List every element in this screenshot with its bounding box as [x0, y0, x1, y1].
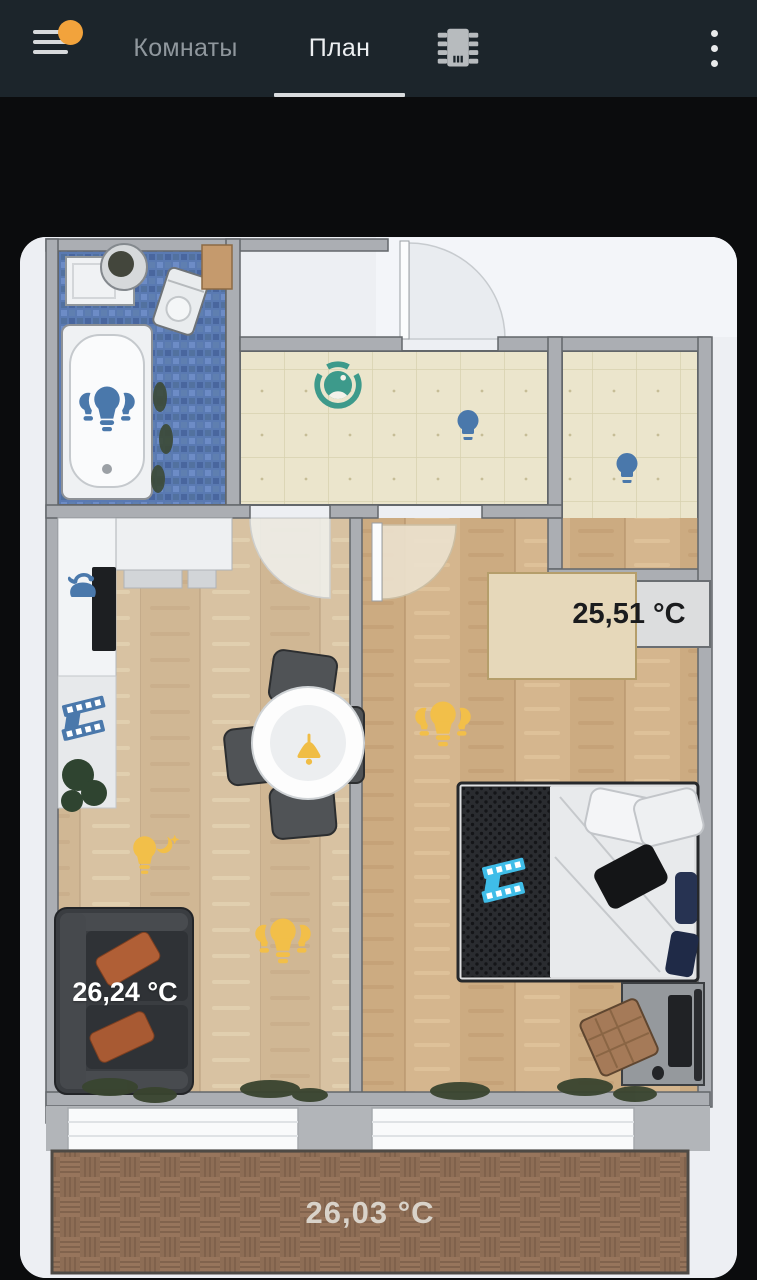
tab-rooms-label: Комнаты	[133, 34, 237, 63]
bedroom-light-group-button[interactable]	[412, 698, 474, 748]
light-group-icon	[76, 383, 138, 433]
lightbulb-icon	[450, 404, 486, 446]
dining-pendant-button[interactable]	[286, 730, 332, 774]
floor-plan-canvas[interactable]: 25,51 °C 26,24 °C 26,03 °C	[20, 237, 737, 1278]
robot-vacuum-icon	[311, 358, 365, 412]
tab-plan[interactable]: План	[274, 0, 405, 97]
blinds-icon	[56, 695, 114, 741]
bathroom-light-group-button[interactable]	[76, 383, 138, 433]
tab-rooms[interactable]: Комнаты	[108, 0, 263, 97]
closet-temperature[interactable]: 25,51 °C	[548, 581, 710, 647]
active-tab-underline	[274, 93, 405, 97]
balcony-temperature[interactable]: 26,03 °C	[52, 1195, 688, 1231]
vacuum-button[interactable]	[311, 358, 365, 412]
lightbulb-icon	[609, 447, 645, 489]
night-light-icon	[128, 832, 182, 878]
kebab-menu-icon	[711, 30, 718, 37]
kettle-button[interactable]	[60, 562, 106, 604]
light-group-icon	[252, 915, 314, 965]
devices-chip-button[interactable]	[430, 22, 486, 76]
living-light-group-button[interactable]	[252, 915, 314, 965]
bedroom-blinds-button[interactable]	[476, 857, 534, 903]
kettle-icon	[60, 562, 106, 604]
overflow-menu-button[interactable]	[699, 22, 729, 76]
app-screen: Комнаты План	[0, 0, 757, 1280]
tab-plan-label: План	[309, 34, 370, 63]
blinds-icon	[476, 857, 534, 903]
closet-light-button[interactable]	[609, 447, 645, 489]
menu-button[interactable]	[30, 24, 90, 74]
app-header: Комнаты План	[0, 0, 757, 97]
kitchen-blinds-button[interactable]	[56, 695, 114, 741]
living-room-temperature[interactable]: 26,24 °C	[56, 977, 194, 1008]
night-light-button[interactable]	[128, 832, 182, 878]
chip-icon	[430, 22, 486, 76]
notification-badge	[58, 20, 83, 45]
hallway	[240, 351, 548, 505]
light-group-icon	[412, 698, 474, 748]
hallway-light-button[interactable]	[450, 404, 486, 446]
ceiling-light-icon	[286, 730, 332, 774]
bath-mat	[202, 245, 232, 289]
hamburger-menu-icon	[33, 30, 61, 34]
